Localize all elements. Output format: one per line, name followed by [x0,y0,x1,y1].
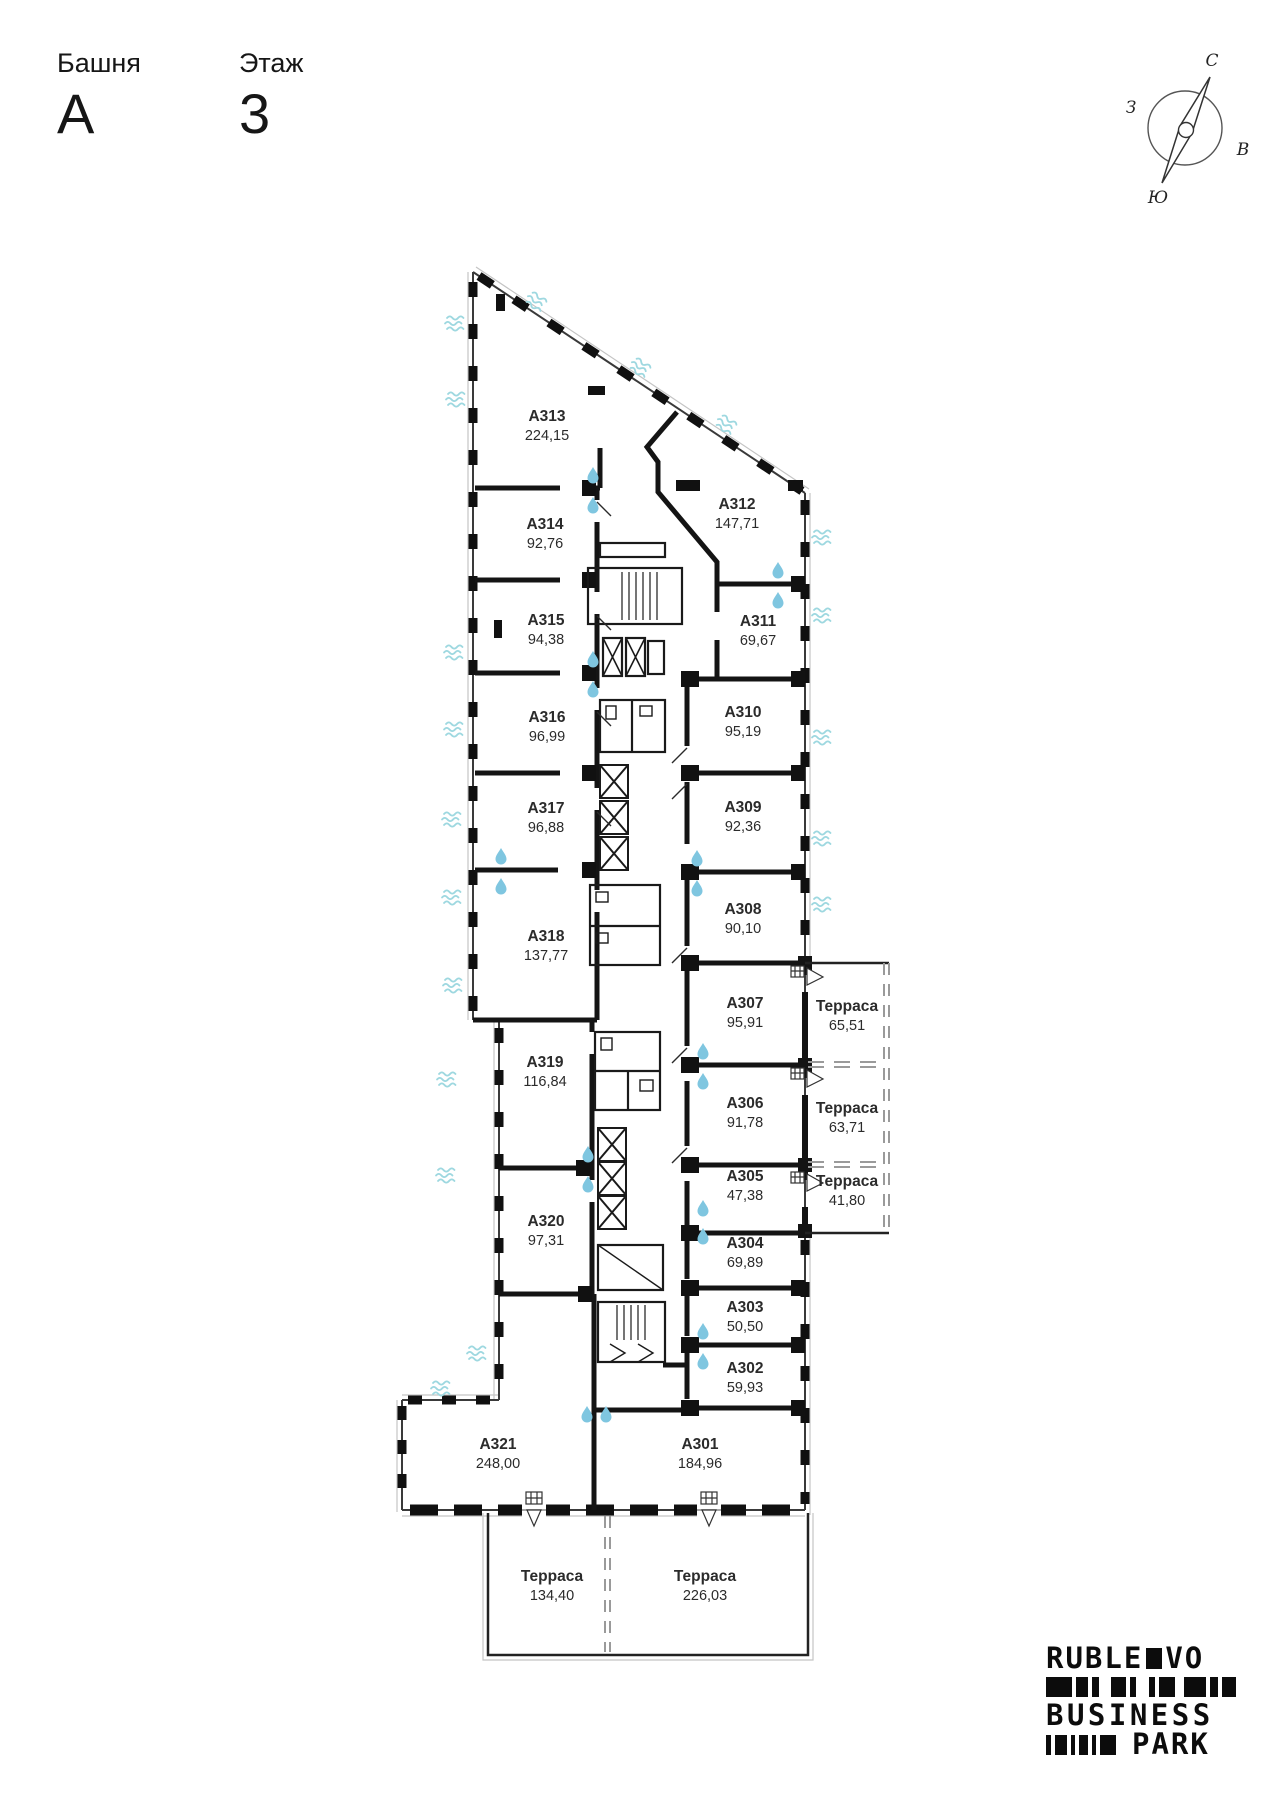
compass-east: В [1236,140,1250,160]
room-label: А309 [724,799,761,816]
room-area: 94,38 [528,632,564,648]
logo-word-vo: VO [1165,1644,1204,1673]
room-area: 137,77 [524,948,568,964]
room-label: А305 [726,1168,763,1185]
compass-north: С [1205,51,1218,71]
logo-barcode-row-2 [1046,1735,1120,1755]
room-label: А313 [528,408,565,425]
terrace-area: 41,80 [829,1193,865,1209]
room-area: 91,78 [727,1115,763,1131]
core [588,543,682,1362]
room-area: 116,84 [523,1074,566,1090]
room-label: А306 [726,1095,763,1112]
room-label: А304 [726,1235,763,1252]
terrace-label: Терраса [816,998,879,1015]
room-area: 97,31 [528,1233,564,1249]
elevator [600,801,628,834]
room-label: А319 [526,1054,563,1071]
room-area: 47,38 [727,1188,763,1204]
room-label: А316 [528,709,565,726]
terrace-area: 134,40 [530,1588,574,1604]
floor-plan-page: Башня А Этаж 3 [0,0,1280,1810]
room-label: А301 [681,1436,718,1453]
terrace-area: 65,51 [829,1018,865,1034]
floor-plan-drawing: А313 224,15 А314 92,76 А315 94,38 А316 9… [0,0,1280,1810]
logo-word-park: PARK [1132,1730,1210,1759]
room-area: 90,10 [725,921,761,937]
logo-barcode-row-1 [1046,1677,1258,1697]
room-label: А312 [718,496,755,513]
compass-west: З [1126,98,1137,118]
room-area: 69,67 [740,633,776,649]
logo-square-icon [1146,1648,1162,1669]
stairs-upper [588,568,682,624]
room-area: 224,15 [525,428,569,444]
elevator [598,1128,626,1161]
door-swings [597,502,687,1163]
room-area: 95,19 [725,724,761,740]
logo-word-ruble: RUBLE [1046,1644,1143,1673]
room-area: 59,93 [727,1380,763,1396]
room-area: 147,71 [715,516,759,532]
terrace-label: Терраса [816,1100,879,1117]
compass-south: Ю [1147,188,1168,208]
room-label: А310 [724,704,761,721]
bottom-terrace [483,1513,813,1660]
room-labels: А313 224,15 А314 92,76 А315 94,38 А316 9… [476,408,879,1604]
room-area: 69,89 [727,1255,763,1271]
room-area: 96,99 [529,729,565,745]
room-area: 184,96 [678,1456,722,1472]
room-label: А311 [740,613,777,630]
window-wave-icons [431,290,831,1395]
elevator [600,765,628,798]
stair-landing [600,543,665,557]
room-label: А308 [724,901,761,918]
room-label: А307 [726,995,763,1012]
compass: С З В Ю [1126,51,1250,208]
terrace-label: Терраса [674,1568,737,1585]
room-label: А317 [527,800,564,817]
room-label: А314 [526,516,563,533]
logo-word-business: BUSINESS [1046,1701,1214,1730]
terrace-label: Терраса [521,1568,584,1585]
rublevo-business-park-logo: RUBLE VO BUSINESS PARK [1046,1644,1258,1759]
room-label: А320 [527,1213,564,1230]
terrace-area: 226,03 [683,1588,727,1604]
room-area: 96,88 [528,820,564,836]
terrace-area: 63,71 [829,1120,865,1136]
terrace-label: Терраса [816,1173,879,1190]
logo-line-1: RUBLE VO [1046,1644,1258,1673]
room-area: 50,50 [727,1319,763,1335]
room-label: А318 [527,928,564,945]
logo-line-2: BUSINESS [1046,1701,1258,1730]
logo-line-3: PARK [1046,1730,1258,1759]
room-label: А303 [726,1299,763,1316]
room-label: А321 [479,1436,516,1453]
room-area: 248,00 [476,1456,520,1472]
elevator [598,1162,626,1195]
elevator [598,1196,626,1229]
room-area: 92,76 [527,536,563,552]
room-area: 95,91 [727,1015,763,1031]
entrance-symbols [526,966,823,1526]
room-area: 92,36 [725,819,761,835]
room-label: А302 [726,1360,763,1377]
elevator [600,837,628,870]
room-label: А315 [527,612,564,629]
